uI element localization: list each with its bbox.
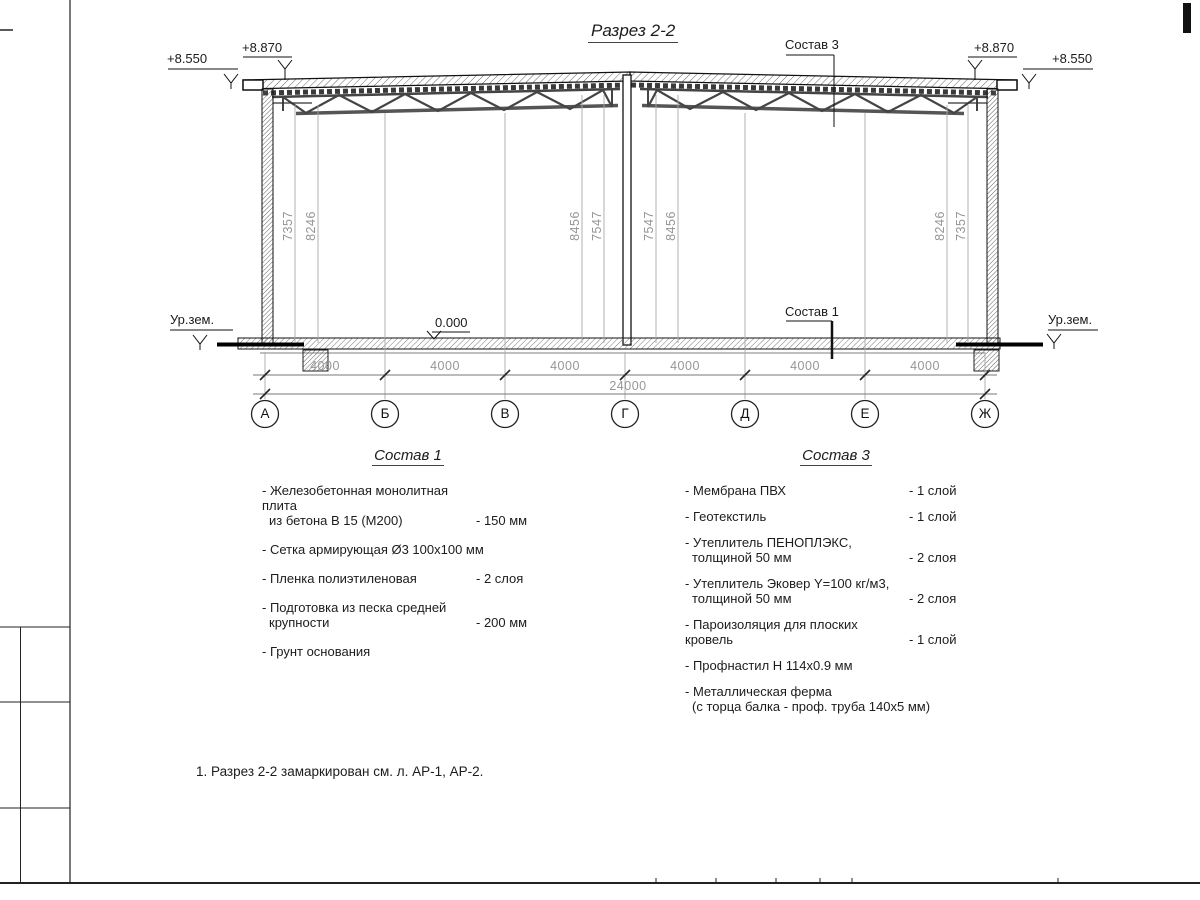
axis-bubble-label: А (251, 406, 279, 421)
composition-1-heading: Состав 1 (262, 448, 554, 463)
floor-zero-mark: 0.000 (435, 315, 468, 330)
list-item: - Сетка армирующая Ø3 100x100 мм (262, 542, 554, 557)
vertical-dim: 8246 (933, 191, 947, 261)
truss-left (272, 89, 620, 114)
axis-bubble-label: Ж (971, 406, 999, 421)
sheet-note: 1. Разрез 2-2 замаркирован см. л. АР-1, … (196, 764, 483, 779)
list-item: - Утеплитель Эковер Y=100 кг/м3,толщиной… (685, 576, 987, 606)
section-drawing (0, 0, 1200, 900)
bay-dim: 4000 (895, 359, 955, 373)
axis-bubble-label: Б (371, 406, 399, 421)
elevation-left-outer: +8.550 (167, 51, 207, 66)
elevation-left-inner: +8.870 (242, 40, 282, 55)
composition-3-heading: Состав 3 (685, 448, 987, 463)
bay-dim: 4000 (295, 359, 355, 373)
drawing-title: Разрез 2-2 (588, 21, 678, 43)
list-item: - Утеплитель ПЕНОПЛЭКС,толщиной 50 мм - … (685, 535, 987, 565)
elevation-right-inner: +8.870 (974, 40, 1014, 55)
vertical-dim: 7357 (281, 191, 295, 261)
bay-dim: 4000 (535, 359, 595, 373)
list-item: - Геотекстиль - 1 слой (685, 509, 987, 524)
drawing-sheet: { "sheet": { "title": "Разрез 2-2", "not… (0, 0, 1200, 900)
list-item: - Профнастил Н 114x0.9 мм (685, 658, 987, 673)
list-item: - Мембрана ПВХ - 1 слой (685, 483, 987, 498)
list-item: - Подготовка из песка среднейкрупности -… (262, 600, 554, 630)
total-dim: 24000 (598, 379, 658, 393)
walls-columns (262, 75, 998, 345)
list-item: - Пароизоляция для плоских кровель - 1 с… (685, 617, 987, 647)
ground-level-left: Ур.зем. (170, 312, 214, 327)
vertical-dim: 7547 (590, 191, 604, 261)
callout-sostav3: Состав 3 (785, 37, 839, 52)
bay-dim: 4000 (655, 359, 715, 373)
list-item: - Железобетонная монолитная плитаиз бето… (262, 483, 554, 528)
sheet-frame (0, 0, 1200, 883)
axis-bubble-label: Д (731, 406, 759, 421)
composition-1-block: Состав 1 - Железобетонная монолитная пли… (262, 448, 554, 673)
axis-bubble-label: Е (851, 406, 879, 421)
list-item: - Металлическая ферма(с торца балка - пр… (685, 684, 987, 714)
vertical-dim: 7547 (642, 191, 656, 261)
axis-bubble-label: Г (611, 406, 639, 421)
list-item: - Грунт основания (262, 644, 554, 659)
bay-dim: 4000 (775, 359, 835, 373)
list-item: - Пленка полиэтиленовая - 2 слоя (262, 571, 554, 586)
elevation-right-outer: +8.550 (1052, 51, 1092, 66)
ground-level-right: Ур.зем. (1048, 312, 1092, 327)
vertical-dim: 8456 (664, 191, 678, 261)
axis-bubble-label: В (491, 406, 519, 421)
vertical-dim: 8246 (304, 191, 318, 261)
vertical-dim: 8456 (568, 191, 582, 261)
vertical-dim: 7357 (954, 191, 968, 261)
composition-3-block: Состав 3 - Мембрана ПВХ - 1 слой - Геоте… (685, 448, 987, 725)
callout-sostav1: Состав 1 (785, 304, 839, 319)
bay-dim: 4000 (415, 359, 475, 373)
